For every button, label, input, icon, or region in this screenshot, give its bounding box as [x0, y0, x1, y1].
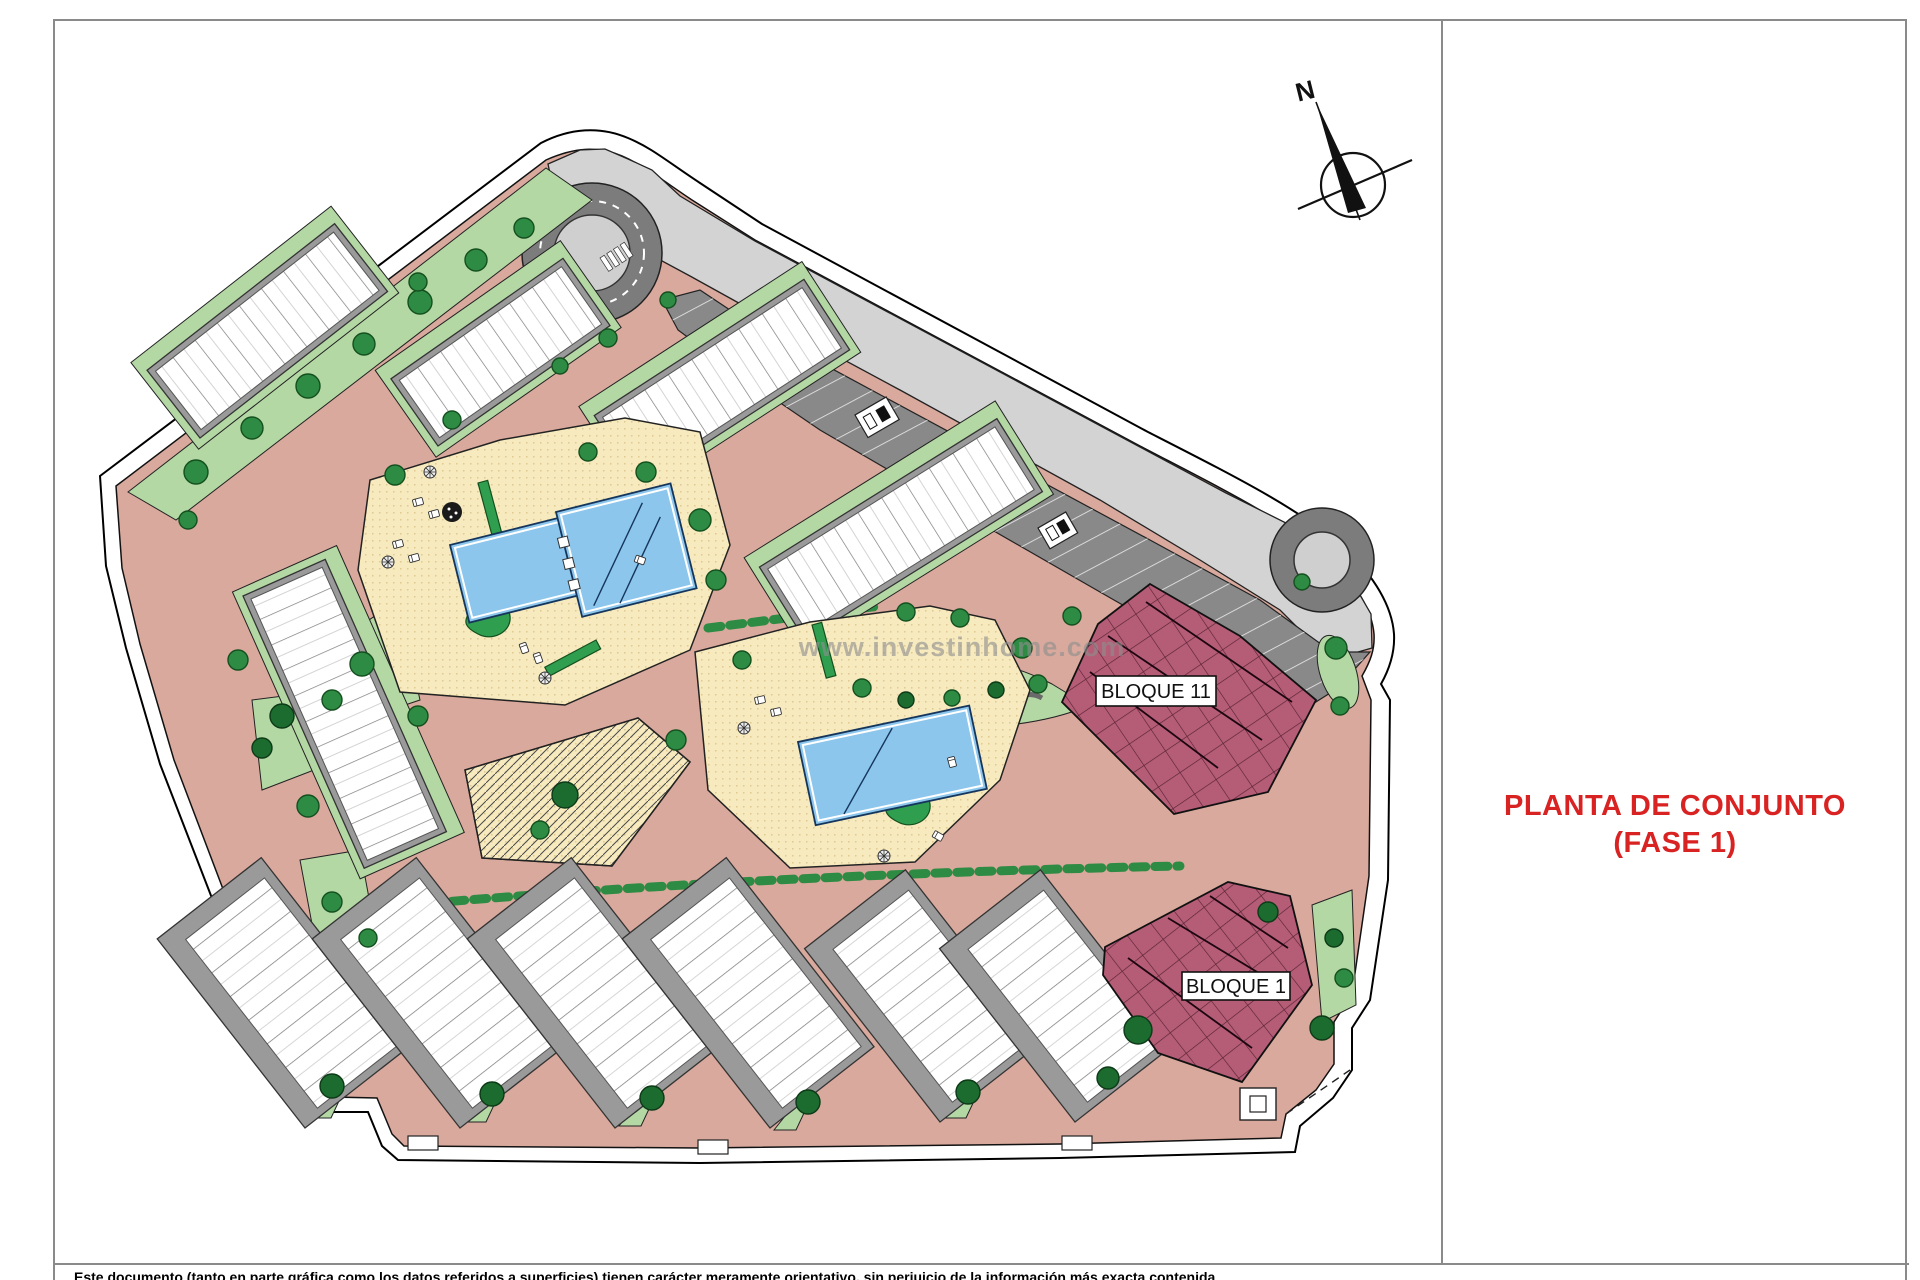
disclaimer-text: Este documento (tanto en parte gráfica c…: [74, 1269, 1874, 1280]
drawing-title-line1: PLANTA DE CONJUNTO: [1443, 788, 1907, 825]
plan-sheet: BLOQUE 11 BLOQUE 1: [0, 0, 1920, 1280]
bloque-11-label: BLOQUE 11: [1101, 681, 1211, 703]
site-plan-drawing: BLOQUE 11 BLOQUE 1: [0, 0, 1920, 1280]
watermark-text: www.investinhome.com: [798, 632, 1126, 662]
bloque-1-label: BLOQUE 1: [1186, 976, 1286, 998]
north-label: N: [1292, 74, 1317, 108]
utility-box: [1240, 1088, 1276, 1120]
footer-divider: [53, 1263, 1909, 1265]
drawing-title: PLANTA DE CONJUNTO (FASE 1): [1443, 788, 1907, 862]
compass-rose: N: [1292, 74, 1412, 220]
panel-divider: [1441, 19, 1443, 1264]
roundabout-east: [1270, 508, 1374, 612]
drawing-title-line2: (FASE 1): [1443, 825, 1907, 862]
